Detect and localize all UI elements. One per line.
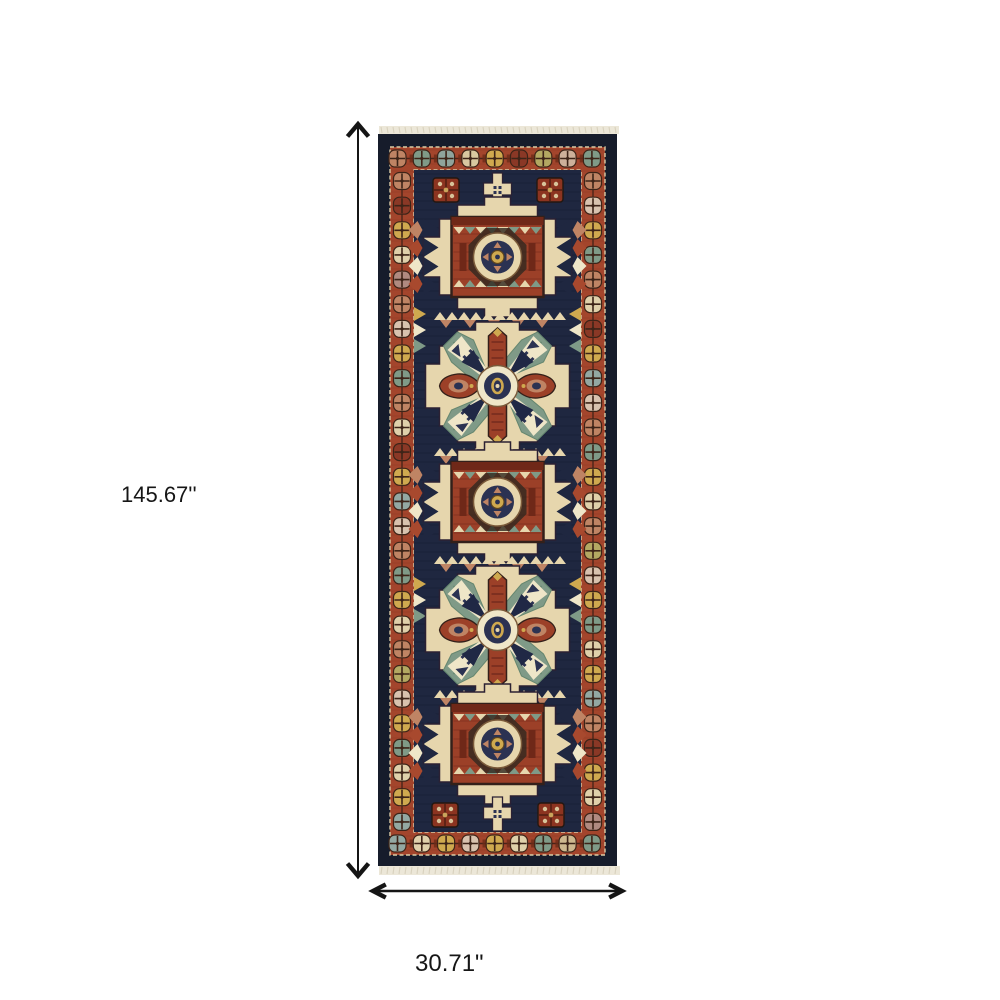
svg-text:145.67'': 145.67'' bbox=[121, 482, 197, 507]
svg-text:30.71": 30.71" bbox=[415, 950, 484, 977]
